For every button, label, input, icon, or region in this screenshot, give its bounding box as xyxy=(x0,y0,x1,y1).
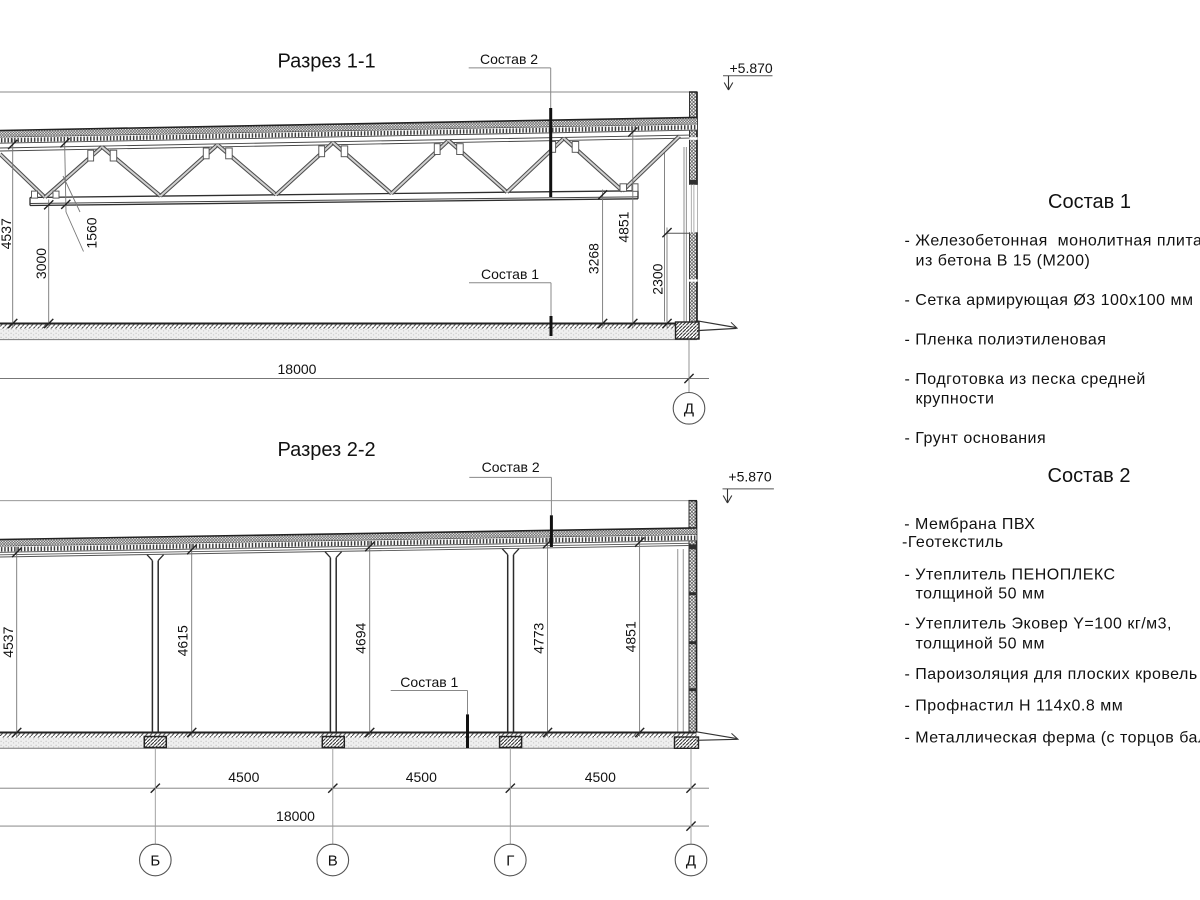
svg-text:В: В xyxy=(328,852,338,869)
svg-text:толщиной 50 мм: толщиной 50 мм xyxy=(916,586,1046,603)
svg-text:4851: 4851 xyxy=(623,621,639,652)
svg-text:Состав 1: Состав 1 xyxy=(400,674,458,690)
svg-text:18000: 18000 xyxy=(278,361,317,377)
svg-text:Состав 1: Состав 1 xyxy=(481,266,539,282)
svg-text:Разрез 1-1: Разрез 1-1 xyxy=(278,51,376,73)
svg-text:2300: 2300 xyxy=(650,263,666,294)
svg-text:1560: 1560 xyxy=(84,217,100,248)
svg-text:4773: 4773 xyxy=(530,623,546,654)
svg-text:3268: 3268 xyxy=(585,243,601,274)
svg-text:4851: 4851 xyxy=(616,211,632,242)
svg-text:- Сетка армирующая Ø3 100х100: - Сетка армирующая Ø3 100х100 мм xyxy=(905,292,1194,309)
svg-text:18000: 18000 xyxy=(276,808,315,824)
svg-text:толщиной 50 мм: толщиной 50 мм xyxy=(916,635,1046,652)
svg-text:из бетона В 15 (М200): из бетона В 15 (М200) xyxy=(916,252,1091,269)
svg-text:- Железобетонная монолитная п: - Железобетонная монолитная плита xyxy=(905,232,1200,249)
svg-text:4500: 4500 xyxy=(228,769,259,785)
svg-text:Д: Д xyxy=(684,401,694,418)
svg-text:- Мембрана ПВХ: - Мембрана ПВХ xyxy=(904,516,1035,533)
svg-text:Д: Д xyxy=(686,852,696,869)
svg-text:- Утеплитель ПЕНОПЛЕКС: - Утеплитель ПЕНОПЛЕКС xyxy=(905,567,1116,584)
svg-text:Состав 1: Состав 1 xyxy=(1048,191,1131,213)
svg-text:крупности: крупности xyxy=(916,391,995,408)
svg-text:4615: 4615 xyxy=(175,625,191,656)
svg-text:4500: 4500 xyxy=(585,769,616,785)
svg-text:+5.870: +5.870 xyxy=(730,60,773,76)
svg-text:4537: 4537 xyxy=(0,218,14,249)
svg-text:3000: 3000 xyxy=(33,248,49,279)
svg-text:Состав 2: Состав 2 xyxy=(1048,465,1131,487)
svg-text:Б: Б xyxy=(150,852,160,869)
svg-text:- Подготовка из песка средней: - Подготовка из песка средней xyxy=(905,371,1146,388)
svg-text:Разрез 2-2: Разрез 2-2 xyxy=(278,439,376,461)
svg-text:Г: Г xyxy=(506,852,514,869)
svg-text:4537: 4537 xyxy=(0,626,16,657)
svg-text:- Пленка полиэтиленовая: - Пленка полиэтиленовая xyxy=(905,331,1107,348)
svg-text:Состав 2: Состав 2 xyxy=(482,459,540,475)
svg-text:- Металлическая ферма (с торцо: - Металлическая ферма (с торцов балки xyxy=(905,730,1200,747)
svg-text:4694: 4694 xyxy=(353,623,369,654)
svg-text:+5.870: +5.870 xyxy=(728,469,771,485)
svg-text:- Пароизоляция для плоских кро: - Пароизоляция для плоских кровель xyxy=(905,666,1198,683)
svg-text:Состав 2: Состав 2 xyxy=(480,51,538,67)
svg-text:- Грунт основания: - Грунт основания xyxy=(905,430,1047,447)
svg-text:- Утеплитель Эковер Y=100 кг/м: - Утеплитель Эковер Y=100 кг/м3, xyxy=(905,616,1172,633)
svg-text:4500: 4500 xyxy=(406,769,437,785)
svg-text:- Профнастил Н 114х0.8 мм: - Профнастил Н 114х0.8 мм xyxy=(905,698,1124,715)
svg-text:-Геотекстиль: -Геотекстиль xyxy=(902,534,1004,551)
